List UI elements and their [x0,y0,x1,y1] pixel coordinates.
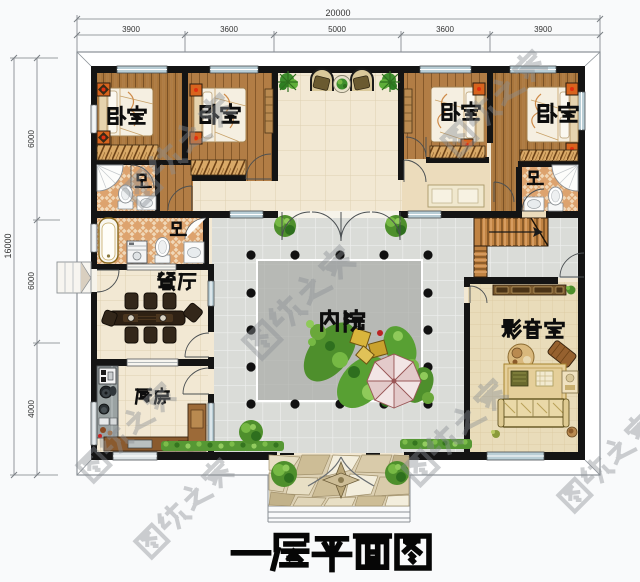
svg-text:3600: 3600 [436,25,454,34]
svg-text:5000: 5000 [328,25,346,34]
svg-text:3900: 3900 [534,25,552,34]
svg-text:16000: 16000 [3,233,13,258]
svg-text:3600: 3600 [220,25,238,34]
svg-text:6000: 6000 [27,272,36,290]
svg-text:6000: 6000 [27,130,36,148]
svg-text:20000: 20000 [325,8,350,18]
svg-text:4000: 4000 [27,400,36,418]
svg-text:3900: 3900 [122,25,140,34]
